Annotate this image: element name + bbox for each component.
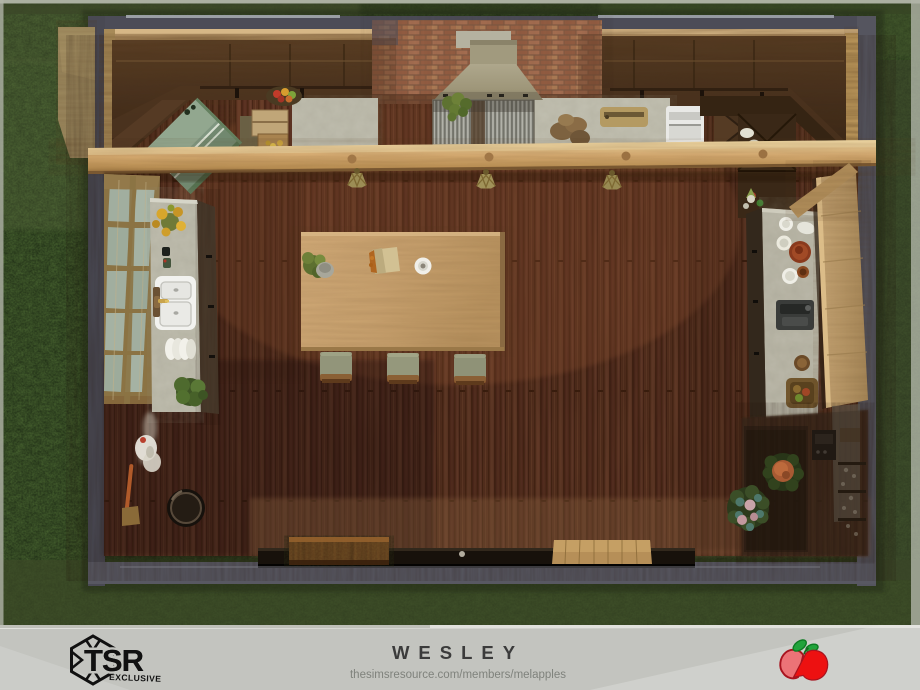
svg-text:thesimsresource.com/members/me: thesimsresource.com/members/melapples — [350, 669, 566, 681]
svg-text:EXCLUSIVE: EXCLUSIVE — [109, 672, 162, 684]
svg-text:WESLEY: WESLEY — [392, 642, 524, 663]
